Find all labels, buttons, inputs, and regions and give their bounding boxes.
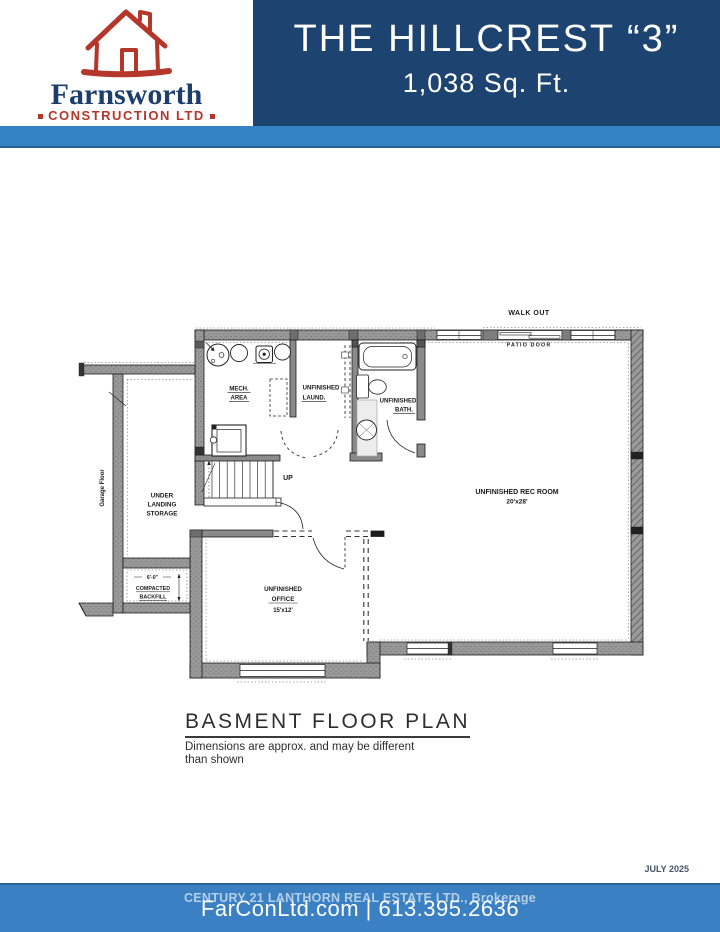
logo-tagline: CONSTRUCTION LTD: [0, 108, 253, 123]
svg-text:LANDING: LANDING: [148, 502, 177, 509]
office-label: UNFINISHED: [264, 586, 302, 593]
page-subtitle: 1,038 Sq. Ft.: [253, 68, 720, 99]
svg-text:BACKFILL: BACKFILL: [140, 595, 168, 601]
office-dimension: 15'x12': [273, 608, 293, 614]
caption-title: BASMENT FLOOR PLAN: [185, 710, 470, 738]
svg-text:OFFICE: OFFICE: [272, 596, 295, 603]
farnsworth-house-logo-icon: [76, 6, 176, 80]
caption-note: Dimensions are approx. and may be differ…: [185, 741, 475, 767]
up-label: UP: [283, 475, 293, 482]
header-accent-bar: [0, 126, 720, 148]
garage-floor-label: Garage Floor: [100, 469, 106, 507]
bath-label: UNFINISHED: [380, 399, 417, 405]
page-title: THE HILLCREST “3”: [253, 18, 720, 61]
garage-wall: [82, 365, 195, 374]
basement-floor-plan-drawing: WALK OUT PATIO DOOR MECH. AREA UNFINISHE…: [0, 280, 720, 700]
caption-note-line2: than shown: [185, 754, 475, 767]
backfill-label: COMPACTED: [136, 586, 170, 592]
tagline-bullet-icon: [38, 114, 43, 119]
door-swings: [276, 420, 415, 569]
laundry-label: UNFINISHED: [303, 386, 340, 392]
logo-company-name: Farnsworth: [0, 78, 253, 112]
water-tank-icon: [231, 345, 248, 362]
garage-wall: [113, 374, 123, 613]
plan-labels: WALK OUT PATIO DOOR MECH. AREA UNFINISHE…: [100, 310, 559, 614]
water-tank-icon: [275, 344, 291, 360]
caption-block: BASMENT FLOOR PLAN Dimensions are approx…: [185, 710, 475, 767]
toilet-icon: [357, 375, 369, 398]
svg-text:BATH.: BATH.: [395, 408, 413, 414]
mech-area-label: MECH.: [229, 387, 249, 393]
date-stamp: JULY 2025: [644, 864, 689, 874]
walk-out-label: WALK OUT: [508, 310, 550, 317]
tagline-bullet-icon: [210, 114, 215, 119]
staircase: [202, 461, 281, 507]
svg-text:LAUND.: LAUND.: [303, 396, 326, 402]
backfill-dimension: 6'-0": [147, 575, 159, 581]
title-panel: THE HILLCREST “3” 1,038 Sq. Ft.: [253, 0, 720, 126]
right-foundation-wall: [631, 330, 643, 655]
flyer-page: Farnsworth CONSTRUCTION LTD THE HILLCRES…: [0, 0, 720, 932]
logo-tagline-text: CONSTRUCTION LTD: [48, 108, 205, 123]
svg-text:AREA: AREA: [230, 396, 248, 402]
mechanical-fixtures: [206, 343, 291, 457]
svg-text:STORAGE: STORAGE: [146, 511, 177, 518]
rec-room-label: UNFINISHED REC ROOM: [475, 489, 558, 496]
logo-panel: Farnsworth CONSTRUCTION LTD: [0, 0, 253, 126]
caption-note-line1: Dimensions are approx. and may be differ…: [185, 741, 475, 754]
rec-room-dimension: 20'x28': [506, 499, 528, 506]
storage-label: UNDER: [151, 493, 174, 500]
patio-door-label: PATIO DOOR: [507, 343, 552, 349]
footer-bar: CENTURY 21 LANTHORN REAL ESTATE LTD., Br…: [0, 883, 720, 932]
footer-contact: FarConLtd.com | 613.395.2636: [0, 896, 720, 922]
